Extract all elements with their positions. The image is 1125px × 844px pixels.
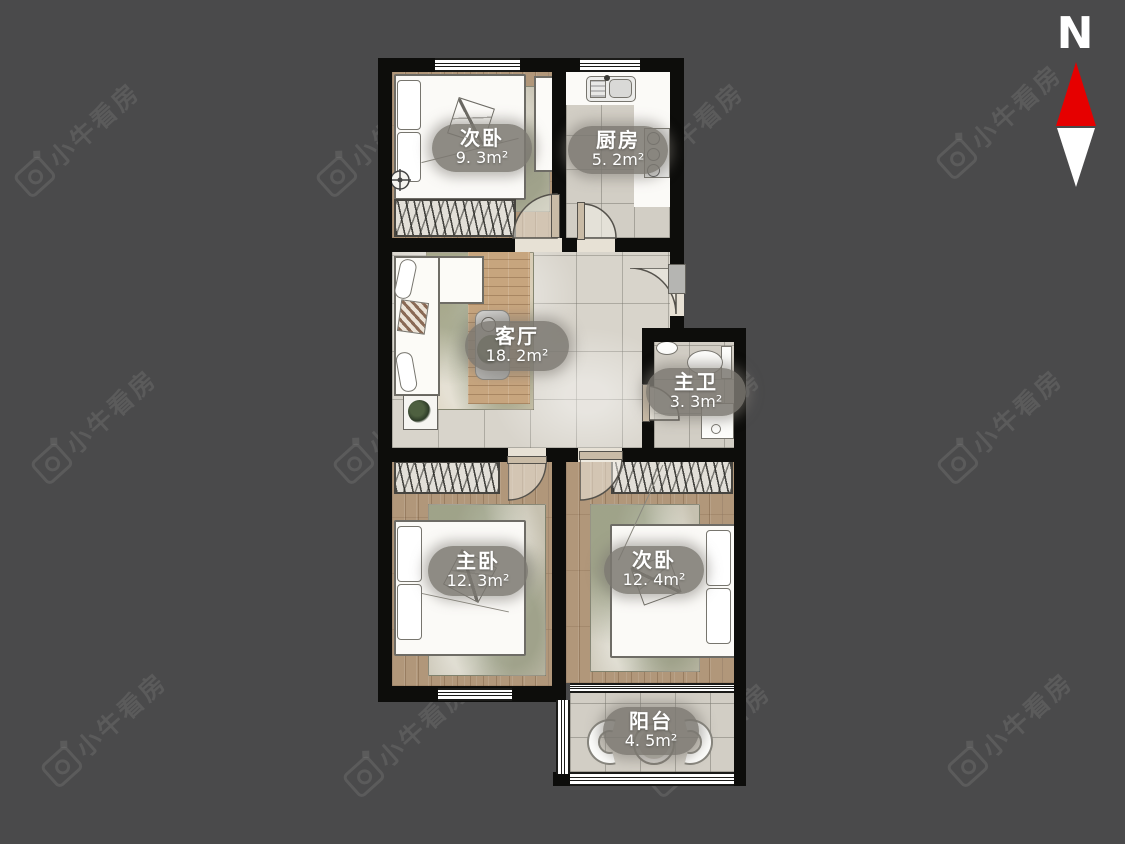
room-area: 9. 3m² bbox=[456, 149, 509, 167]
wall-segment bbox=[622, 448, 746, 462]
watermark-text: 小牛看房 bbox=[40, 73, 147, 175]
window-kitchen bbox=[580, 58, 640, 72]
watermark: 小牛看房 bbox=[942, 663, 1080, 793]
room-name: 厨房 bbox=[596, 130, 640, 151]
wall-segment bbox=[734, 690, 746, 786]
door-arc-bedroom-bottom bbox=[580, 458, 623, 501]
wall-segment bbox=[553, 772, 570, 786]
watermark-text: 小牛看房 bbox=[57, 360, 164, 462]
room-area: 4. 5m² bbox=[625, 732, 678, 750]
room-name: 主卧 bbox=[456, 551, 500, 572]
room-name: 阳台 bbox=[629, 711, 673, 732]
room-label-kitchen: 厨房 5. 2m² bbox=[568, 126, 668, 174]
wardrobe-bedroom-top bbox=[394, 199, 516, 237]
wall-segment bbox=[670, 58, 684, 268]
wall-segment bbox=[642, 420, 654, 450]
wardrobe-master-bedroom bbox=[394, 461, 500, 494]
watermark: 小牛看房 bbox=[931, 55, 1069, 185]
door-leaf-master-bedroom bbox=[507, 456, 547, 464]
watermark: 小牛看房 bbox=[36, 663, 174, 793]
door-arc-master-bedroom bbox=[508, 462, 547, 501]
watermark: 小牛看房 bbox=[9, 73, 147, 203]
door-threshold bbox=[515, 238, 562, 252]
door-threshold bbox=[577, 238, 615, 252]
north-arrow-icon bbox=[1056, 60, 1096, 188]
room-area: 12. 3m² bbox=[447, 572, 510, 590]
room-label-bathroom: 主卫 3. 3m² bbox=[646, 368, 746, 416]
wall-segment bbox=[546, 448, 578, 462]
door-leaf-bedroom-top bbox=[551, 194, 560, 238]
wall-segment bbox=[615, 238, 684, 252]
pillow bbox=[397, 80, 421, 130]
pot-plant bbox=[408, 400, 431, 423]
compass-north-label: N bbox=[1053, 12, 1097, 56]
watermark: 小牛看房 bbox=[26, 360, 164, 490]
bath-sink bbox=[656, 341, 678, 355]
wall-segment bbox=[552, 462, 566, 702]
room-label-living-room: 客厅 18. 2m² bbox=[465, 321, 569, 371]
wall-segment bbox=[642, 328, 746, 342]
window-master-bedroom bbox=[438, 688, 512, 701]
sink-faucet bbox=[604, 75, 610, 81]
watermark-text: 小牛看房 bbox=[963, 360, 1070, 462]
room-label-bedroom-top: 次卧 9. 3m² bbox=[432, 124, 532, 172]
sink-drainboard bbox=[590, 80, 606, 98]
room-name: 次卧 bbox=[632, 550, 676, 571]
wall-segment bbox=[378, 58, 392, 702]
room-label-master-bedroom: 主卧 12. 3m² bbox=[428, 546, 528, 596]
watermark: 小牛看房 bbox=[932, 360, 1070, 490]
room-name: 客厅 bbox=[495, 326, 539, 347]
sofa-striped-pillow bbox=[397, 299, 429, 335]
door-leaf-kitchen bbox=[577, 202, 585, 240]
floorplan-canvas: 小牛看房小牛看房小牛看房小牛看房小牛看房小牛看房小牛看房小牛看房小牛看房小牛看房… bbox=[0, 0, 1125, 844]
door-leaf-bedroom-bottom bbox=[579, 451, 623, 460]
pillow bbox=[706, 588, 731, 644]
watermark-text: 小牛看房 bbox=[962, 55, 1069, 157]
room-area: 12. 4m² bbox=[623, 571, 686, 589]
room-area: 18. 2m² bbox=[486, 347, 549, 365]
room-label-bedroom-bottom: 次卧 12. 4m² bbox=[604, 546, 704, 594]
watermark-text: 小牛看房 bbox=[67, 663, 174, 765]
pillow bbox=[706, 530, 731, 586]
watermark-text: 小牛看房 bbox=[973, 663, 1080, 765]
room-area: 3. 3m² bbox=[670, 393, 723, 411]
sink-basin bbox=[609, 79, 632, 98]
window-bedroom-top bbox=[435, 58, 520, 72]
room-name: 主卫 bbox=[674, 372, 718, 393]
cabinet-bedroom-top bbox=[534, 76, 554, 172]
shower-drain bbox=[711, 424, 721, 434]
pillow bbox=[397, 584, 422, 640]
balcony-sliding-door bbox=[570, 683, 734, 693]
room-label-balcony: 阳台 4. 5m² bbox=[603, 707, 699, 755]
wall-segment bbox=[562, 238, 577, 252]
door-leaf-entry bbox=[668, 264, 686, 294]
window-balcony-bottom bbox=[570, 772, 734, 786]
wall-segment bbox=[378, 448, 508, 462]
window-balcony-left bbox=[556, 700, 570, 774]
room-name: 次卧 bbox=[460, 128, 504, 149]
pillow bbox=[397, 526, 422, 582]
wall-segment bbox=[378, 238, 515, 252]
room-area: 5. 2m² bbox=[592, 151, 645, 169]
floor-kitchen-2 bbox=[634, 207, 670, 238]
door-arc-kitchen bbox=[581, 203, 617, 239]
